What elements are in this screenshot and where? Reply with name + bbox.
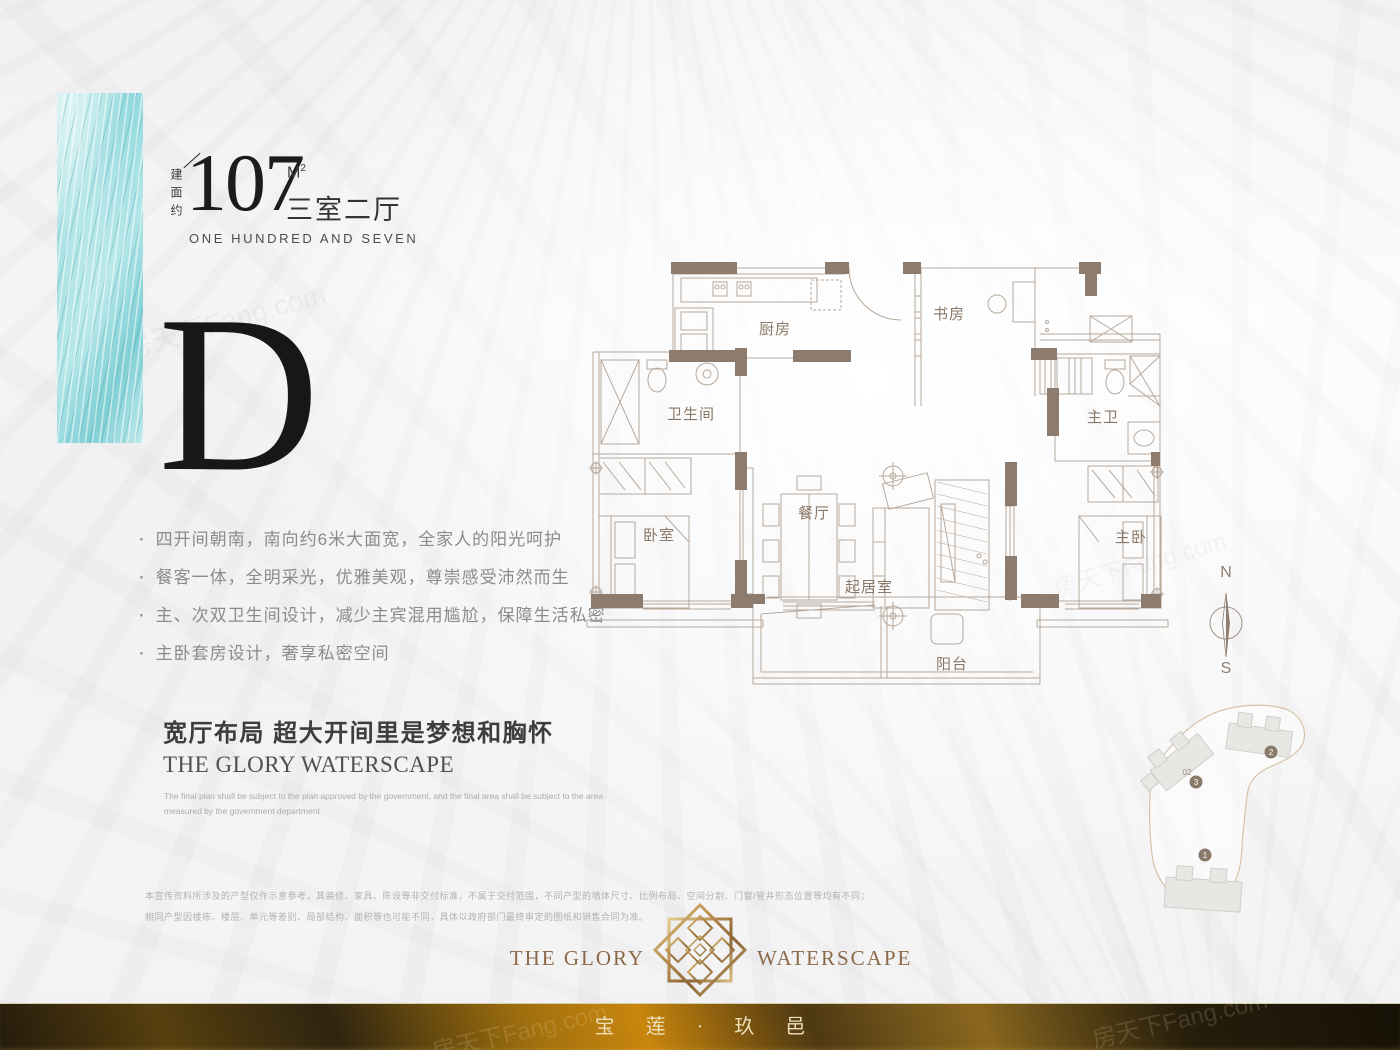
note-line-1: The final plan shall be subject to the p… [164,789,603,804]
disclaimer-line-1: 本宣传资料所涉及的产型仅作示意参考，其装修、家具、陈设等非交付标准，不属于交付范… [145,886,870,907]
brand-name-left: THE GLORY [505,946,645,971]
badge-1-number: 1 [1203,851,1208,860]
compass-needle-fill [1226,593,1230,657]
badge-3-number: 3 [1194,778,1199,787]
teal-facade-image [57,93,143,443]
plan-letter: D [158,282,320,506]
room-label-study: 书房 [933,306,965,323]
feature-item: 主卧套房设计，奢享私密空间 [139,642,606,665]
disclaimer: 本宣传资料所涉及的产型仅作示意参考，其装修、家具、陈设等非交付标准，不属于交付范… [145,886,870,928]
area-unit: M2 [287,163,306,182]
room-label-living: 起居室 [845,579,893,596]
tagline-note: The final plan shall be subject to the p… [164,789,603,819]
area-prefix: 建面约 [168,168,184,230]
layout-type: 三室二厅 [286,188,402,227]
brand-en-serif: THE GLORY WATERSCAPE [163,752,454,778]
compass: N S [1206,563,1246,675]
unit-letter: M [287,164,300,181]
site-plan: 02 2 3 1 [1085,695,1365,930]
brand-name-right: WATERSCAPE [757,946,912,971]
floor-plan: 厨房 书房 卫生间 主卫 卧室 餐厅 起居室 主卧 阳台 [585,256,1170,692]
feature-item: 四开间朝南，南向约6米大面宽，全家人的阳光呵护 [139,528,606,551]
emblem-pattern [655,905,745,995]
feature-item: 主、次双卫生间设计，减少主宾混用尴尬，保障生活私密 [139,604,606,627]
room-label-kitchen: 厨房 [759,321,791,338]
room-label-bedroom: 卧室 [643,527,675,544]
compass-south-label: S [1221,660,1232,675]
badge-2-number: 2 [1269,748,1274,757]
compass-north-label: N [1220,564,1232,581]
note-line-2: measured by the government department [164,804,603,819]
feature-list: 四开间朝南，南向约6米大面宽，全家人的阳光呵护 餐客一体，全明采光，优雅美观，尊… [139,528,606,680]
area-words: ONE HUNDRED AND SEVEN [189,231,418,246]
flyer-page: 房天下Fang.com 房天下Fang.com 建面约 107 M2 三室二厅 … [0,0,1400,1050]
room-label-master-bathroom: 主卫 [1087,409,1119,426]
feature-item: 餐客一体，全明采光，优雅美观，尊崇感受沛然而生 [139,566,606,589]
tagline-title: 宽厅布局 超大开间里是梦想和胸怀 [163,713,554,748]
room-label-bathroom: 卫生间 [667,406,715,423]
brand-emblem-icon [652,902,748,1002]
disclaimer-line-2: 相同产型因楼栋、楼层、单元等差别、局部结构、面积等也可能不同，具体以政府部门最终… [145,907,870,928]
room-label-dining: 餐厅 [798,505,830,522]
unit-sup: 2 [300,163,306,174]
room-label-master-bedroom: 主卧 [1115,529,1147,546]
room-label-balcony: 阳台 [936,656,968,673]
site-unit-label: 02 [1183,768,1192,777]
floor-plan-walls-thin [587,268,1168,684]
